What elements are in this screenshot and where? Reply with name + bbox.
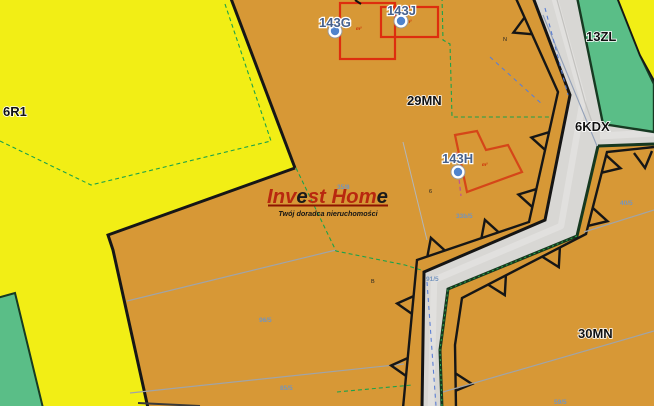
svg-text:6KDX: 6KDX <box>575 119 610 134</box>
svg-text:85/5: 85/5 <box>280 385 293 392</box>
svg-text:13ZL: 13ZL <box>586 29 616 44</box>
svg-text:143G: 143G <box>319 15 351 30</box>
svg-text:6R1: 6R1 <box>3 104 27 119</box>
svg-text:B: B <box>371 279 375 285</box>
svg-text:91/5: 91/5 <box>426 276 439 283</box>
svg-text:143H: 143H <box>442 151 473 166</box>
svg-text:m²: m² <box>356 26 362 31</box>
svg-text:96/5: 96/5 <box>259 317 272 324</box>
svg-text:6: 6 <box>429 189 432 195</box>
svg-text:30MN: 30MN <box>578 326 613 341</box>
svg-text:29MN: 29MN <box>407 93 442 108</box>
svg-text:40/5: 40/5 <box>620 200 633 207</box>
svg-text:N: N <box>503 37 507 43</box>
svg-text:143J: 143J <box>387 3 416 18</box>
svg-text:33b/5: 33b/5 <box>456 213 473 220</box>
svg-text:Twój doradca nieruchomości: Twój doradca nieruchomości <box>278 209 378 218</box>
svg-text:59/5: 59/5 <box>554 399 567 406</box>
svg-text:m²: m² <box>482 162 488 167</box>
